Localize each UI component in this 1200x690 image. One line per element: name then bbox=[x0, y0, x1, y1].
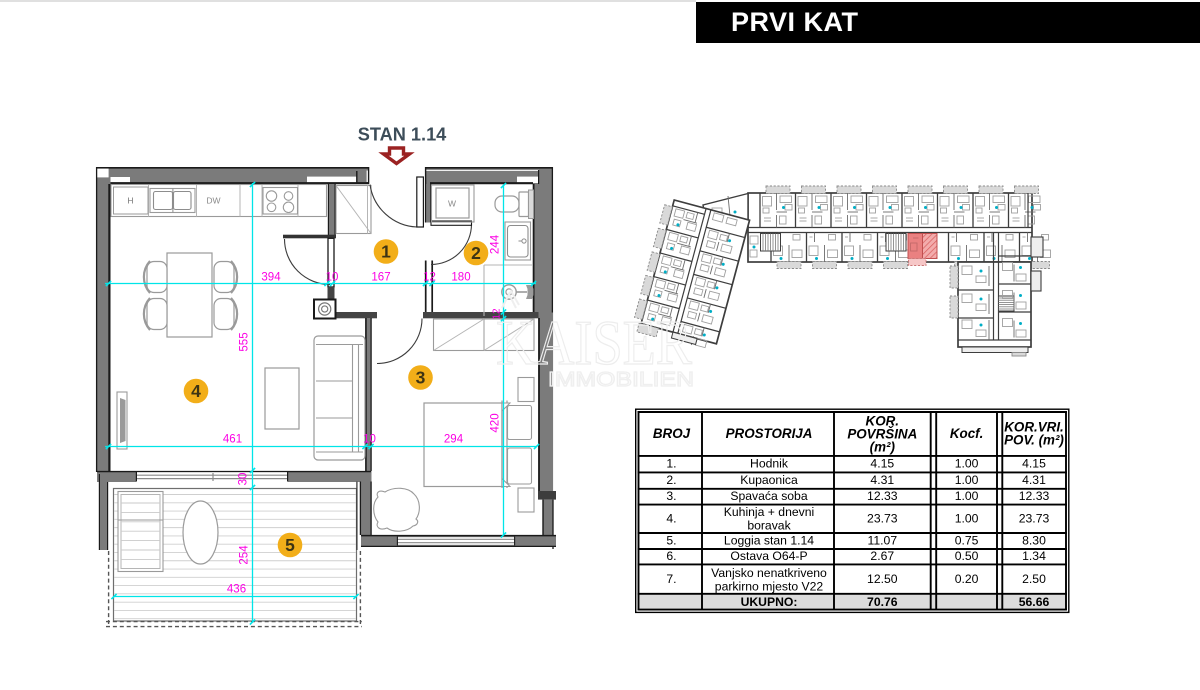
svg-text:1: 1 bbox=[381, 242, 391, 262]
svg-text:12: 12 bbox=[423, 272, 436, 284]
svg-text:12.50: 12.50 bbox=[867, 572, 898, 586]
svg-text:2.: 2. bbox=[666, 473, 676, 487]
svg-text:boravak: boravak bbox=[747, 519, 791, 533]
svg-text:1.00: 1.00 bbox=[955, 456, 979, 470]
svg-text:3: 3 bbox=[416, 368, 426, 388]
svg-text:0.20: 0.20 bbox=[955, 572, 979, 586]
svg-text:4.31: 4.31 bbox=[870, 473, 894, 487]
svg-text:4.15: 4.15 bbox=[870, 456, 894, 470]
svg-text:12.33: 12.33 bbox=[1019, 489, 1050, 503]
svg-text:UKUPNO:: UKUPNO: bbox=[741, 595, 798, 609]
svg-text:30: 30 bbox=[238, 473, 250, 486]
svg-text:10: 10 bbox=[363, 434, 376, 446]
svg-text:Kocf.: Kocf. bbox=[950, 426, 983, 441]
svg-text:H: H bbox=[127, 196, 133, 206]
svg-text:6.: 6. bbox=[666, 549, 676, 563]
svg-text:Spavaća soba: Spavaća soba bbox=[730, 489, 807, 503]
svg-text:1.34: 1.34 bbox=[1022, 549, 1046, 563]
svg-text:12.33: 12.33 bbox=[867, 489, 898, 503]
svg-text:394: 394 bbox=[261, 272, 281, 284]
svg-text:244: 244 bbox=[490, 234, 502, 254]
svg-text:STAN 1.14: STAN 1.14 bbox=[358, 125, 447, 145]
svg-text:Loggia stan 1.14: Loggia stan 1.14 bbox=[724, 534, 814, 548]
svg-text:Ostava O64-P: Ostava O64-P bbox=[730, 549, 807, 563]
svg-text:5.: 5. bbox=[666, 534, 676, 548]
svg-text:5: 5 bbox=[285, 535, 295, 555]
svg-text:KAISER: KAISER bbox=[496, 307, 692, 378]
svg-text:Vanjsko nenatkriveno: Vanjsko nenatkriveno bbox=[711, 566, 827, 580]
svg-text:4.31: 4.31 bbox=[1022, 473, 1046, 487]
svg-text:IMMOBILIEN: IMMOBILIEN bbox=[548, 369, 694, 391]
svg-text:parkirno mjesto V22: parkirno mjesto V22 bbox=[715, 580, 824, 594]
svg-text:1.00: 1.00 bbox=[955, 473, 979, 487]
svg-text:0.50: 0.50 bbox=[955, 549, 979, 563]
svg-text:8.30: 8.30 bbox=[1022, 534, 1046, 548]
svg-text:436: 436 bbox=[227, 584, 246, 596]
svg-text:2: 2 bbox=[471, 243, 481, 263]
svg-text:294: 294 bbox=[444, 434, 464, 446]
svg-text:180: 180 bbox=[451, 272, 470, 284]
svg-text:2.67: 2.67 bbox=[870, 549, 894, 563]
svg-text:Kuhinja + dnevni: Kuhinja + dnevni bbox=[724, 505, 814, 519]
svg-text:7.: 7. bbox=[666, 572, 676, 586]
svg-text:23.73: 23.73 bbox=[867, 512, 898, 526]
svg-text:1.00: 1.00 bbox=[955, 489, 979, 503]
svg-text:167: 167 bbox=[371, 272, 390, 284]
svg-text:DW: DW bbox=[206, 196, 220, 206]
svg-text:BROJ: BROJ bbox=[653, 426, 691, 441]
svg-text:70.76: 70.76 bbox=[867, 595, 898, 609]
svg-text:1.00: 1.00 bbox=[955, 512, 979, 526]
svg-text:461: 461 bbox=[223, 434, 242, 446]
svg-text:2.50: 2.50 bbox=[1022, 572, 1046, 586]
svg-text:3.: 3. bbox=[666, 489, 676, 503]
svg-text:254: 254 bbox=[239, 545, 251, 565]
svg-text:1.: 1. bbox=[666, 456, 676, 470]
svg-text:23.73: 23.73 bbox=[1019, 512, 1050, 526]
svg-text:420: 420 bbox=[490, 413, 502, 432]
svg-text:Hodnik: Hodnik bbox=[750, 456, 789, 470]
svg-text:Kupaonica: Kupaonica bbox=[740, 473, 798, 487]
svg-text:56.66: 56.66 bbox=[1019, 595, 1050, 609]
svg-text:10: 10 bbox=[326, 272, 339, 284]
svg-text:4.: 4. bbox=[666, 512, 676, 526]
svg-text:POV. (m²): POV. (m²) bbox=[1004, 433, 1064, 448]
svg-text:11.07: 11.07 bbox=[868, 534, 898, 548]
svg-text:555: 555 bbox=[239, 332, 251, 351]
svg-text:PROSTORIJA: PROSTORIJA bbox=[726, 426, 813, 441]
svg-text:0.75: 0.75 bbox=[955, 534, 979, 548]
svg-text:4: 4 bbox=[191, 381, 201, 401]
svg-text:(m²): (m²) bbox=[870, 440, 896, 455]
svg-text:W: W bbox=[448, 199, 456, 209]
svg-text:4.15: 4.15 bbox=[1022, 456, 1046, 470]
